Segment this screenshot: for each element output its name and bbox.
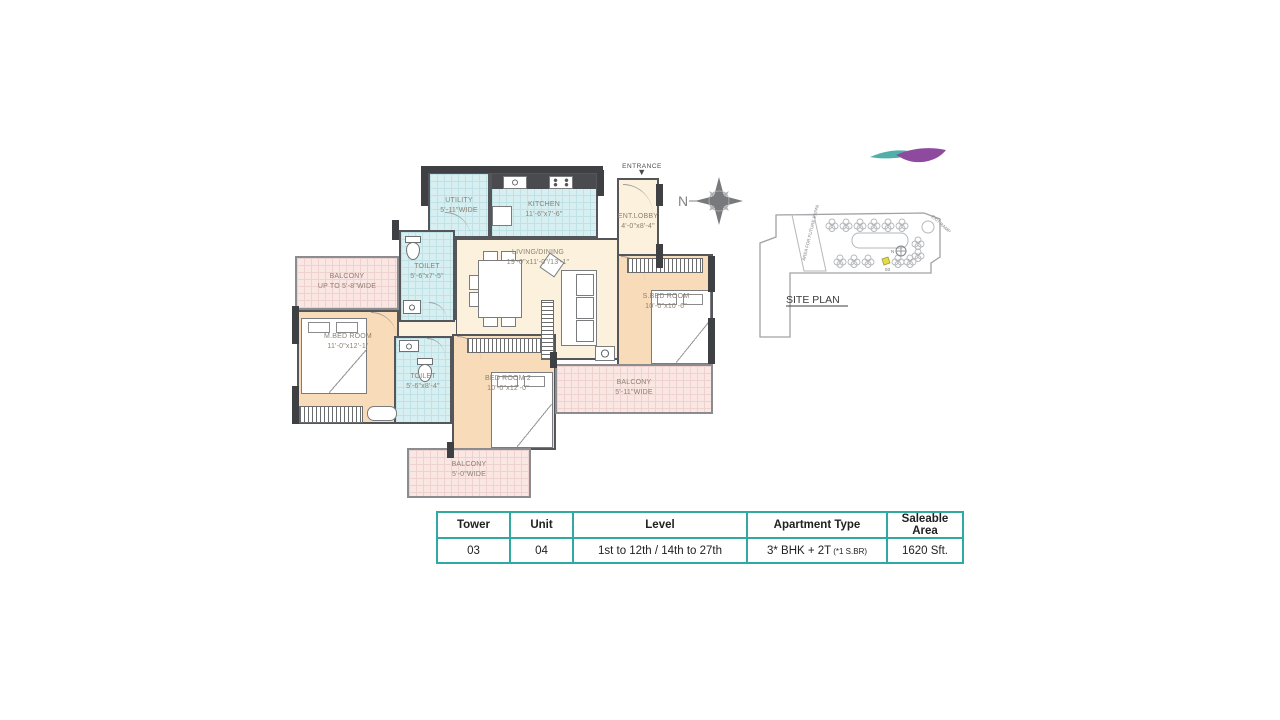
room-label-balcony-left: BALCONY UP TO 5'-8"WIDE xyxy=(295,272,399,292)
bed-icon-master xyxy=(301,318,367,394)
room-label-toilet-2: TOILET 5'-6"x8'-4" xyxy=(394,372,452,392)
chair-icon xyxy=(483,317,498,327)
site-boundary xyxy=(760,213,940,337)
wall-segment xyxy=(550,352,557,368)
highlighted-tower-label: 03 xyxy=(885,267,891,272)
wall-segment xyxy=(447,442,454,458)
kitchen-sink-icon xyxy=(503,176,527,189)
room-dim: 10'-0"x12'-0" xyxy=(487,384,529,394)
compass-star-icon xyxy=(695,177,743,225)
room-dim: 11'-6"x7'-6" xyxy=(525,210,562,220)
lounge-chair-icon xyxy=(367,406,397,421)
room-name: BALCONY xyxy=(330,272,365,282)
wall-segment xyxy=(656,244,663,268)
room-dim: 11'-0"x12'-1" xyxy=(327,342,368,352)
room-name: TOILET xyxy=(410,372,436,382)
cell-saleable-area: 1620 Sft. xyxy=(887,538,963,563)
wall-segment xyxy=(292,386,299,424)
room-name: S.BED ROOM xyxy=(643,292,690,302)
tv-unit-hatch xyxy=(541,300,554,360)
sofa-icon xyxy=(561,270,597,346)
apartment-type-note: (*1 S.BR) xyxy=(833,547,867,556)
washbasin-icon xyxy=(399,340,419,352)
room-dim: 4'-0"x8'-4" xyxy=(621,222,655,232)
room-dim: 5'-11"WIDE xyxy=(440,206,478,216)
compass-rose: N xyxy=(672,168,752,239)
site-plan-title: SITE PLAN xyxy=(786,294,840,306)
room-dim: 5'-6"x7'-5" xyxy=(410,272,444,282)
room-label-kitchen: KITCHEN 11'-6"x7'-6" xyxy=(490,200,598,220)
room-dim: 5'-11"WIDE xyxy=(615,388,653,398)
wardrobe-hatch xyxy=(467,338,547,353)
brand-logo xyxy=(866,140,950,177)
site-plan-inset: AREA FOR FUTURE EXPANSION N xyxy=(748,205,958,355)
room-name: LIVING/DINING xyxy=(512,248,564,258)
wall-segment xyxy=(292,306,299,344)
wall-segment xyxy=(708,256,715,292)
room-label-s-bedroom: S.BED ROOM 10'-0"x10'-6" xyxy=(625,292,707,312)
floor-plan: UTILITY 5'-11"WIDE KITCHEN 11'-6"x7'-6" … xyxy=(295,160,725,505)
wall-segment xyxy=(708,318,715,364)
room-name: BALCONY xyxy=(617,378,652,388)
floor-plan-page: UTILITY 5'-11"WIDE KITCHEN 11'-6"x7'-6" … xyxy=(0,0,1280,720)
wall-segment xyxy=(597,170,604,196)
wall-segment xyxy=(656,184,663,206)
room-name: M.BED ROOM xyxy=(324,332,372,342)
room-name: BALCONY xyxy=(452,460,487,470)
room-label-balcony-right: BALCONY 5'-11"WIDE xyxy=(555,378,713,398)
wall-segment xyxy=(423,166,603,173)
col-header-apartment-type: Apartment Type xyxy=(747,512,887,538)
washbasin-icon xyxy=(403,300,421,314)
entrance-label: ENTRANCE ▼ xyxy=(607,163,677,175)
apartment-type-value: 3* BHK + 2T xyxy=(767,545,831,557)
spec-table-header-row: Tower Unit Level Apartment Type Saleable… xyxy=(437,512,963,538)
kitchen-hob-icon xyxy=(549,176,573,189)
sofa-cushion xyxy=(576,297,594,319)
compass-north-label: N xyxy=(678,193,688,209)
spec-table-data-row: 03 04 1st to 12th / 14th to 27th 3* BHK … xyxy=(437,538,963,563)
wall-segment xyxy=(421,166,428,206)
wardrobe-hatch xyxy=(627,258,703,273)
col-header-tower: Tower xyxy=(437,512,510,538)
logo-purple-swoosh xyxy=(896,148,946,162)
chair-icon xyxy=(501,317,516,327)
room-name: BED ROOM 2 xyxy=(485,374,531,384)
site-compass-north: N xyxy=(891,249,894,254)
wall-segment xyxy=(392,220,399,240)
sofa-cushion xyxy=(576,320,594,342)
room-dim: 5'-0"WIDE xyxy=(452,470,486,480)
room-name: KITCHEN xyxy=(528,200,560,210)
entrance-arrow-icon: ▼ xyxy=(607,170,677,175)
room-dim: 19'-0"x11'-0"/13'-1" xyxy=(507,258,569,268)
cell-unit: 04 xyxy=(510,538,573,563)
room-label-balcony-bottom: BALCONY 5'-0"WIDE xyxy=(407,460,531,480)
cell-apartment-type: 3* BHK + 2T(*1 S.BR) xyxy=(747,538,887,563)
room-label-bedroom-2: BED ROOM 2 10'-0"x12'-0" xyxy=(465,374,551,394)
room-name: TOILET xyxy=(414,262,440,272)
wardrobe-hatch xyxy=(299,406,363,423)
room-label-utility: UTILITY 5'-11"WIDE xyxy=(428,196,490,216)
room-name: ENT.LOBBY xyxy=(618,212,658,222)
dining-table xyxy=(478,260,522,318)
room-label-master-bedroom: M.BED ROOM 11'-0"x12'-1" xyxy=(303,332,393,352)
col-header-level: Level xyxy=(573,512,747,538)
cell-level: 1st to 12th / 14th to 27th xyxy=(573,538,747,563)
col-header-saleable-area: Saleable Area xyxy=(887,512,963,538)
room-dim: UP TO 5'-8"WIDE xyxy=(318,282,376,292)
room-label-living: LIVING/DINING 19'-0"x11'-0"/13'-1" xyxy=(473,248,603,268)
room-dim: 10'-0"x10'-6" xyxy=(645,302,687,312)
col-header-unit: Unit xyxy=(510,512,573,538)
side-table-icon xyxy=(595,346,615,361)
sofa-cushion xyxy=(576,274,594,296)
spec-table: Tower Unit Level Apartment Type Saleable… xyxy=(436,511,964,564)
room-label-ent-lobby: ENT.LOBBY 4'-0"x8'-4" xyxy=(609,212,667,232)
room-label-toilet-1: TOILET 5'-6"x7'-5" xyxy=(399,262,455,282)
room-name: UTILITY xyxy=(445,196,472,206)
room-dim: 5'-6"x8'-4" xyxy=(406,382,440,392)
cell-tower: 03 xyxy=(437,538,510,563)
